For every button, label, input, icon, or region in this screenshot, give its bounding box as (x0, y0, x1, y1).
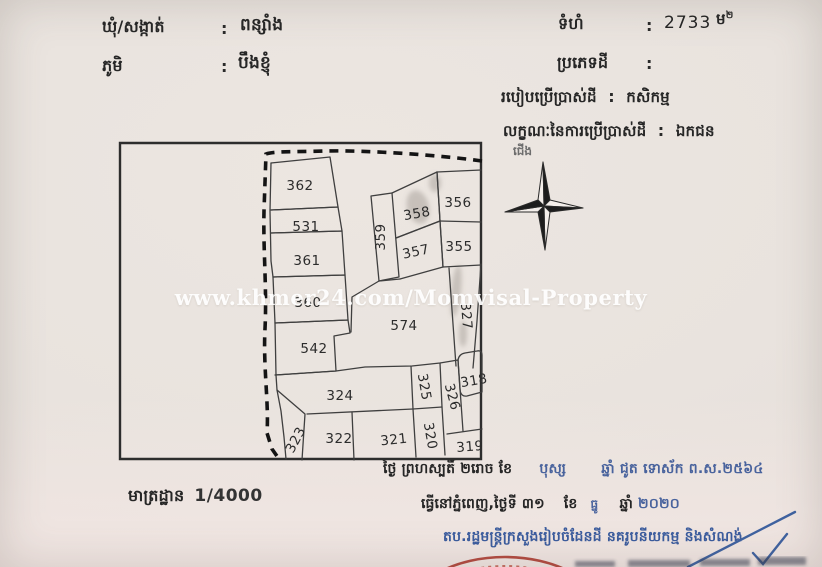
red-stamp-icon (410, 557, 600, 567)
parcel-label-356: 356 (444, 195, 471, 211)
parcel-label-324: 324 (326, 388, 353, 404)
land-type-label: ប្រភេទដី (557, 52, 608, 76)
ministry-line: តប.រដ្ឋមន្ត្រីក្រសួងរៀបចំដែនដី នគរូបនីយក… (443, 527, 743, 548)
date2-month: ធ្នូ (591, 497, 599, 511)
size-unit-sup: ២ (726, 10, 734, 21)
parcel-label-574: 574 (390, 318, 417, 334)
use-character-row: លក្ខណៈនៃការប្រើប្រាស់ដី : ឯកជន (503, 121, 715, 144)
date-line-2: ធ្វើនៅភ្នំពេញ,ថ្ងៃទី ៣១ ខែ ធ្នូ ឆ្នាំ ២០… (421, 494, 680, 515)
parcel-label-326: 326 (441, 382, 464, 412)
land-title-photo: { "colon": ":", "colors": { "ink_blue": … (0, 0, 822, 567)
commune-colon: : (221, 19, 227, 38)
date2-year: ២០២០ (638, 496, 680, 512)
use-character-colon: : (658, 121, 665, 140)
parcel-label-359: 359 (373, 223, 389, 250)
date1-month: បុស្ស (539, 461, 566, 477)
size-label: ទំហំ (558, 13, 584, 37)
parcel-label-322: 322 (325, 431, 352, 447)
date2-khae: ខែ (564, 496, 578, 512)
use-character-value: ឯកជន (676, 122, 715, 140)
parcel-label-325: 325 (414, 372, 434, 402)
parcel-label-321: 321 (380, 431, 409, 450)
land-use-value: កសិកម្ម (626, 88, 670, 106)
commune-value: ពន្សាំង (240, 14, 283, 39)
size-value: 2733 (664, 13, 711, 33)
parcel-label-358: 358 (402, 204, 432, 224)
scale-value: 1/4000 (194, 486, 262, 506)
size-unit: ម២ (716, 8, 734, 32)
parcel-label-531: 531 (292, 219, 319, 235)
land-use-colon: : (608, 87, 615, 106)
parcel-label-320: 320 (420, 421, 440, 451)
scale-row: មាត្រដ្ឋាន1/4000 (128, 485, 263, 509)
commune-label: ឃុំ/សង្កាត់ (102, 16, 165, 40)
size-colon: : (646, 16, 652, 35)
parcel-label-318: 318 (459, 371, 489, 391)
date2-chnam: ឆ្នាំ (619, 496, 633, 512)
parcel-label-361: 361 (293, 253, 320, 269)
parcel-label-355: 355 (445, 239, 472, 255)
land-type-colon: : (646, 54, 652, 73)
village-label: ភូមិ (102, 55, 123, 79)
date1-suffix: ឆ្នាំ ជូត ទោស័ក ព.ស.២៥៦៤ (601, 461, 763, 477)
date2-prefix: ធ្វើនៅភ្នំពេញ,ថ្ងៃទី (421, 496, 517, 512)
land-use-label: របៀបប្រើប្រាស់ដី (501, 88, 597, 106)
parcel-label-362: 362 (286, 178, 313, 194)
date1-prefix: ថ្ងៃ ព្រហស្បតិ៍ ២រោច ខែ (383, 461, 512, 477)
parcel-label-319: 319 (456, 438, 484, 456)
watermark-text: www.khmer24.com/Momvisal-Property (0, 285, 822, 310)
date-line-1: ថ្ងៃ ព្រហស្បតិ៍ ២រោច ខែ បុស្ស ឆ្នាំ ជូត … (383, 459, 764, 480)
compass-rose-icon (495, 150, 595, 258)
parcel-label-542: 542 (300, 341, 327, 357)
date2-day: ៣១ (522, 496, 545, 512)
land-use-row: របៀបប្រើប្រាស់ដី : កសិកម្ម (501, 87, 670, 110)
scale-label: មាត្រដ្ឋាន (128, 486, 184, 505)
cutoff-text-smudge (575, 557, 806, 567)
village-value: បឹងខ្ញុំ (238, 52, 271, 77)
size-unit-base: ម (716, 10, 726, 28)
parcel-label-323: 323 (283, 424, 310, 456)
village-colon: : (221, 57, 227, 76)
parcel-label-357: 357 (401, 241, 431, 262)
use-character-label: លក្ខណៈនៃការប្រើប្រាស់ដី (503, 122, 646, 140)
